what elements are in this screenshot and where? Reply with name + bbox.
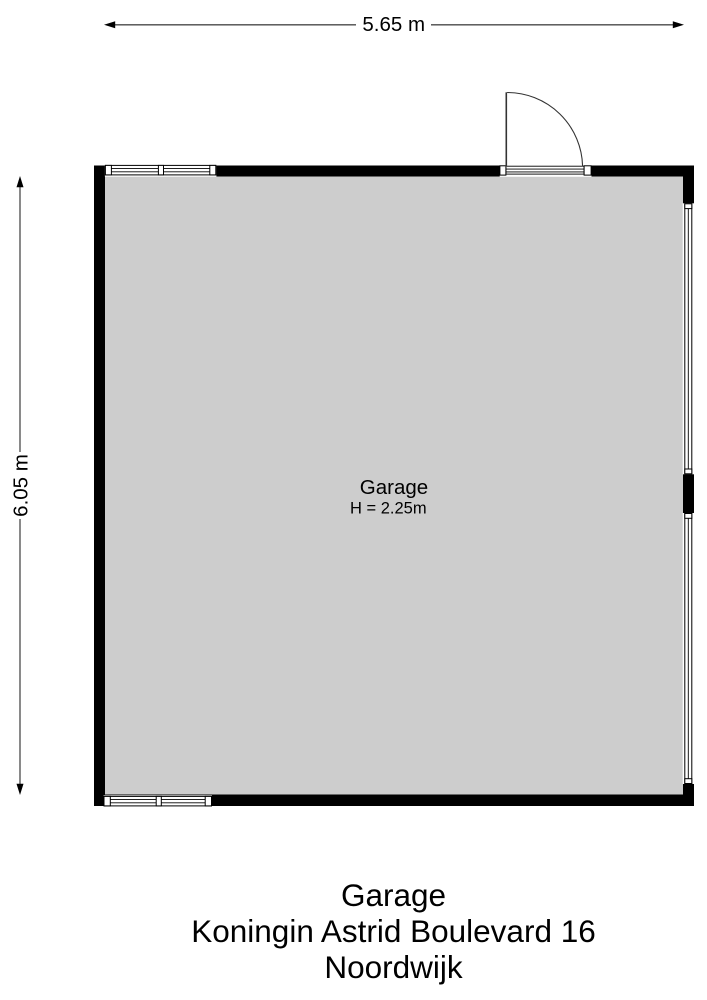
svg-text:Garage: Garage: [341, 877, 446, 913]
svg-text:H = 2.25m: H = 2.25m: [350, 500, 427, 518]
svg-text:Noordwijk: Noordwijk: [324, 949, 463, 985]
svg-text:6.05 m: 6.05 m: [10, 454, 33, 517]
svg-text:Koningin Astrid Boulevard 16: Koningin Astrid Boulevard 16: [191, 913, 596, 949]
svg-text:Garage: Garage: [360, 476, 428, 499]
svg-text:5.65 m: 5.65 m: [362, 13, 425, 36]
